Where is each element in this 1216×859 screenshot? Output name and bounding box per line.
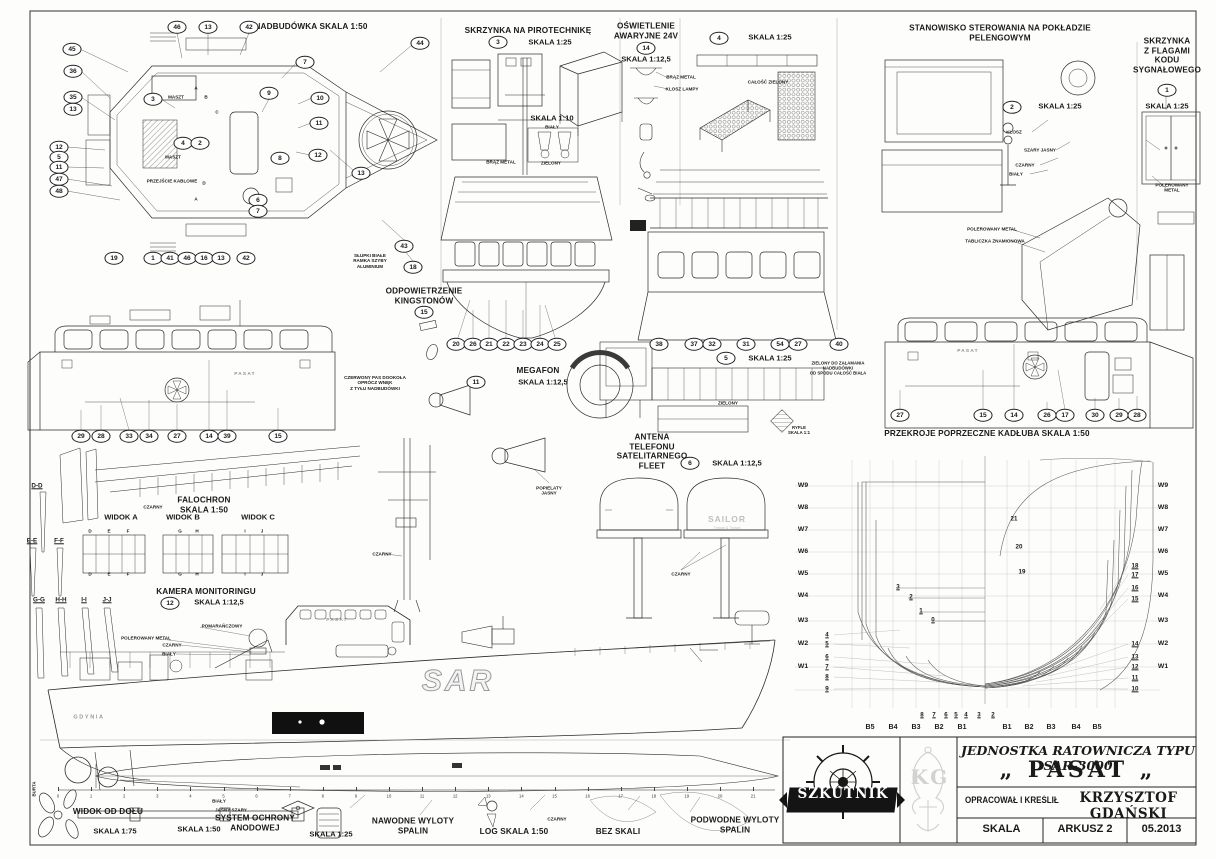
ruler-number: 17 [618,794,623,799]
callout-15: 15 [974,409,993,422]
callout-13: 13 [212,252,231,265]
callout-15: 15 [415,306,434,319]
ruler-number: 5 [222,794,224,799]
ruler-tick [257,787,258,791]
callout-29: 29 [1110,409,1129,422]
callout-7: 7 [249,205,268,218]
ruler-tick [157,787,158,791]
callout-42: 42 [237,252,256,265]
author-monogram: KG [900,765,960,789]
ruler-tick [521,787,522,791]
callout-40: 40 [830,338,849,351]
callout-12: 12 [161,597,180,610]
ruler-tick [720,787,721,791]
ruler-number: 3 [156,794,158,799]
ruler-tick [621,787,622,791]
ruler-tick [389,787,390,791]
callout-13: 13 [199,21,218,34]
ruler-number: 11 [420,794,424,799]
callout-45: 45 [63,43,82,56]
ruler-number: 13 [486,794,491,799]
brand-logo-text: SZKUTNIK [791,786,895,802]
ruler-tick [753,787,754,791]
callout-2: 2 [191,137,210,150]
callout-44: 44 [411,37,430,50]
callout-38: 38 [650,338,669,351]
callout-6: 6 [681,457,700,470]
callout-43: 43 [395,240,414,253]
ruler-number: 4 [189,794,191,799]
title-block-ship-name: „ PASAT „ [960,757,1196,783]
ruler-number: 8 [322,794,324,799]
ruler-tick [455,787,456,791]
callout-27: 27 [891,409,910,422]
callout-15: 15 [269,430,288,443]
callout-13: 13 [352,167,371,180]
callout-11: 11 [310,117,329,130]
callout-3: 3 [144,93,163,106]
ruler-number: 10 [387,794,392,799]
callout-10: 10 [311,92,330,105]
callout-28: 28 [92,430,111,443]
callout-3: 3 [489,36,508,49]
ruler-tick [91,787,92,791]
callout-46: 46 [168,21,187,34]
ruler-tick [323,787,324,791]
callout-28: 28 [1128,409,1147,422]
callout-12: 12 [309,149,328,162]
ruler-tick [124,787,125,791]
ruler-number: 16 [585,794,590,799]
ruler-number: 19 [685,794,690,799]
title-block-credit-label: OPRACOWAŁ I KREŚLIŁ [965,796,1060,806]
callout-13: 13 [64,103,83,116]
ruler-number: 21 [751,794,756,799]
callout-25: 25 [548,338,567,351]
ruler-number: 9 [355,794,357,799]
ruler-tick [422,787,423,791]
ruler-tick [356,787,357,791]
callout-14: 14 [1005,409,1024,422]
callout-47: 47 [50,173,69,186]
callout-14: 14 [637,42,656,55]
title-block: JEDNOSTKA RATOWNICZA TYPU SAR-3000 „ PAS… [783,737,1196,843]
callout-29: 29 [72,430,91,443]
ruler-tick [190,787,191,791]
title-block-sheet-number: ARKUSZ 2 [1043,823,1127,835]
ruler-number: 1 [90,794,92,799]
callout-42: 42 [240,21,259,34]
ruler-tick [555,787,556,791]
ruler-tick [654,787,655,791]
callout-39: 39 [218,430,237,443]
ruler-number: 7 [289,794,291,799]
ruler-tick [588,787,589,791]
callout-2: 2 [1003,101,1022,114]
title-block-credit-name: KRZYSZTOF GDAŃSKI [1061,790,1196,822]
ruler-number: 6 [255,794,257,799]
ruler-number: 20 [718,794,723,799]
callout-27: 27 [789,338,808,351]
callout-7: 7 [296,56,315,69]
callout-30: 30 [1086,409,1105,422]
callout-27: 27 [168,430,187,443]
ruler-tick [224,787,225,791]
ruler-tick [58,787,59,791]
callout-48: 48 [50,185,69,198]
ruler-number: 0 [57,794,59,799]
callout-4: 4 [710,32,729,45]
ruler-tick [290,787,291,791]
callout-32: 32 [703,338,722,351]
callout-9: 9 [260,87,279,100]
callout-26: 26 [1038,409,1057,422]
callout-31: 31 [737,338,756,351]
callout-1: 1 [1158,84,1177,97]
callout-36: 36 [64,65,83,78]
ruler-number: 15 [552,794,557,799]
callout-17: 17 [1056,409,1075,422]
callout-14: 14 [200,430,219,443]
ruler-number: 18 [651,794,656,799]
callout-5: 5 [717,352,736,365]
callout-35: 35 [64,91,83,104]
callout-19: 19 [105,252,124,265]
title-block-date: 05.2013 [1127,823,1196,835]
ruler-number: 2 [123,794,125,799]
ruler-tick [687,787,688,791]
title-block-scale-label: SKALA [960,823,1043,835]
ruler-number: 14 [519,794,524,799]
callout-18: 18 [404,261,423,274]
callout-33: 33 [120,430,139,443]
callout-11: 11 [50,161,69,174]
callout-54: 54 [771,338,790,351]
callout-34: 34 [140,430,159,443]
callout-11: 11 [467,376,486,389]
ruler-number: 12 [453,794,458,799]
drawing-sheet: NADBUDÓWKA SKALA 1:50SKRZYNKA NA PIROTEC… [0,0,1216,859]
drawing-linework [0,0,1216,859]
callout-37: 37 [685,338,704,351]
callout-8: 8 [271,152,290,165]
ruler-tick [488,787,489,791]
